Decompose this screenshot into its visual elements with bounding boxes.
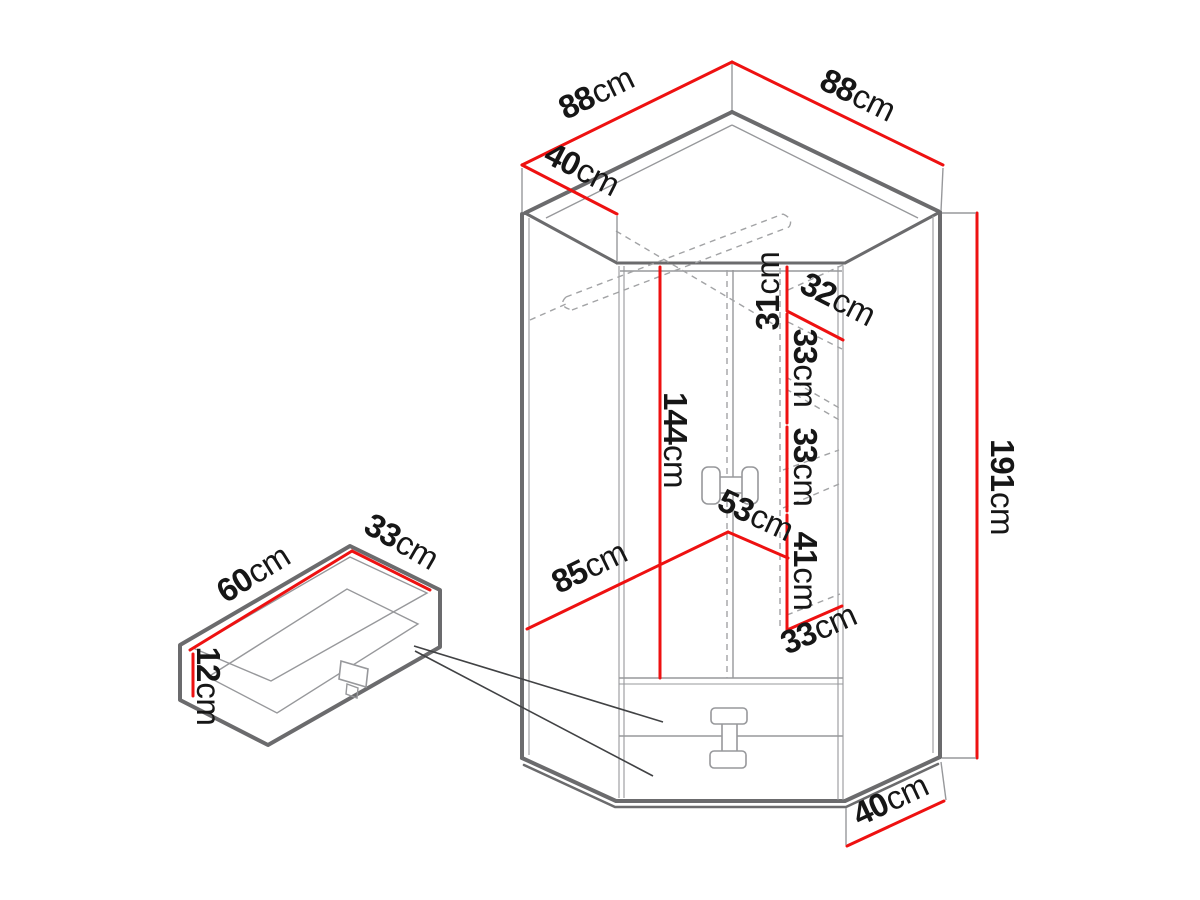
dim-label-top-edge-right: 88cm	[815, 61, 902, 129]
dim-label-drawer-width: 60cm	[210, 537, 296, 610]
dim-label-door-height: 144cm	[657, 392, 694, 488]
dim-label-total-height: 191cm	[984, 439, 1021, 535]
dim-label-side-depth-top: 40cm	[539, 134, 626, 203]
drawer-handle-stem	[722, 722, 737, 753]
wardrobe-inner-lines	[529, 125, 933, 800]
dim-label-top-edge-left: 88cm	[552, 59, 639, 127]
dim-label-side-depth-bottom: 40cm	[847, 766, 934, 833]
dim-label-top-shelf-gap: 31cm	[749, 252, 786, 331]
drawer-handle-top-pad	[711, 708, 747, 724]
drawer-floor	[208, 589, 418, 713]
door-handle-left-pad	[702, 467, 720, 504]
top-side-edge-left	[525, 213, 617, 263]
drawer-handle-bottom-pad	[710, 751, 746, 768]
top-side-edge-right	[845, 212, 940, 263]
dim-label-shelf-gap-middle: 33cm	[787, 428, 824, 507]
leader-lines	[414, 646, 663, 776]
leader-to-lower-drawer	[415, 651, 653, 776]
drawer-handle	[710, 708, 747, 768]
dim-label-drawer-height: 12cm	[190, 647, 227, 726]
drawer-front-handle	[339, 661, 368, 687]
dim-label-drawer-depth: 33cm	[358, 505, 445, 576]
corner-wardrobe-dimension-diagram: 88cm 88cm 40cm 191cm 144cm 31cm 32cm 33c…	[0, 0, 1200, 900]
dim-label-shelf-gap-lower: 41cm	[787, 532, 824, 611]
top-wall-edge-right	[732, 112, 940, 212]
dim-label-shelf-gap-upper: 33cm	[787, 329, 824, 408]
wardrobe-outline	[522, 112, 940, 807]
diagram-canvas: 88cm 88cm 40cm 191cm 144cm 31cm 32cm 33c…	[0, 0, 1200, 900]
